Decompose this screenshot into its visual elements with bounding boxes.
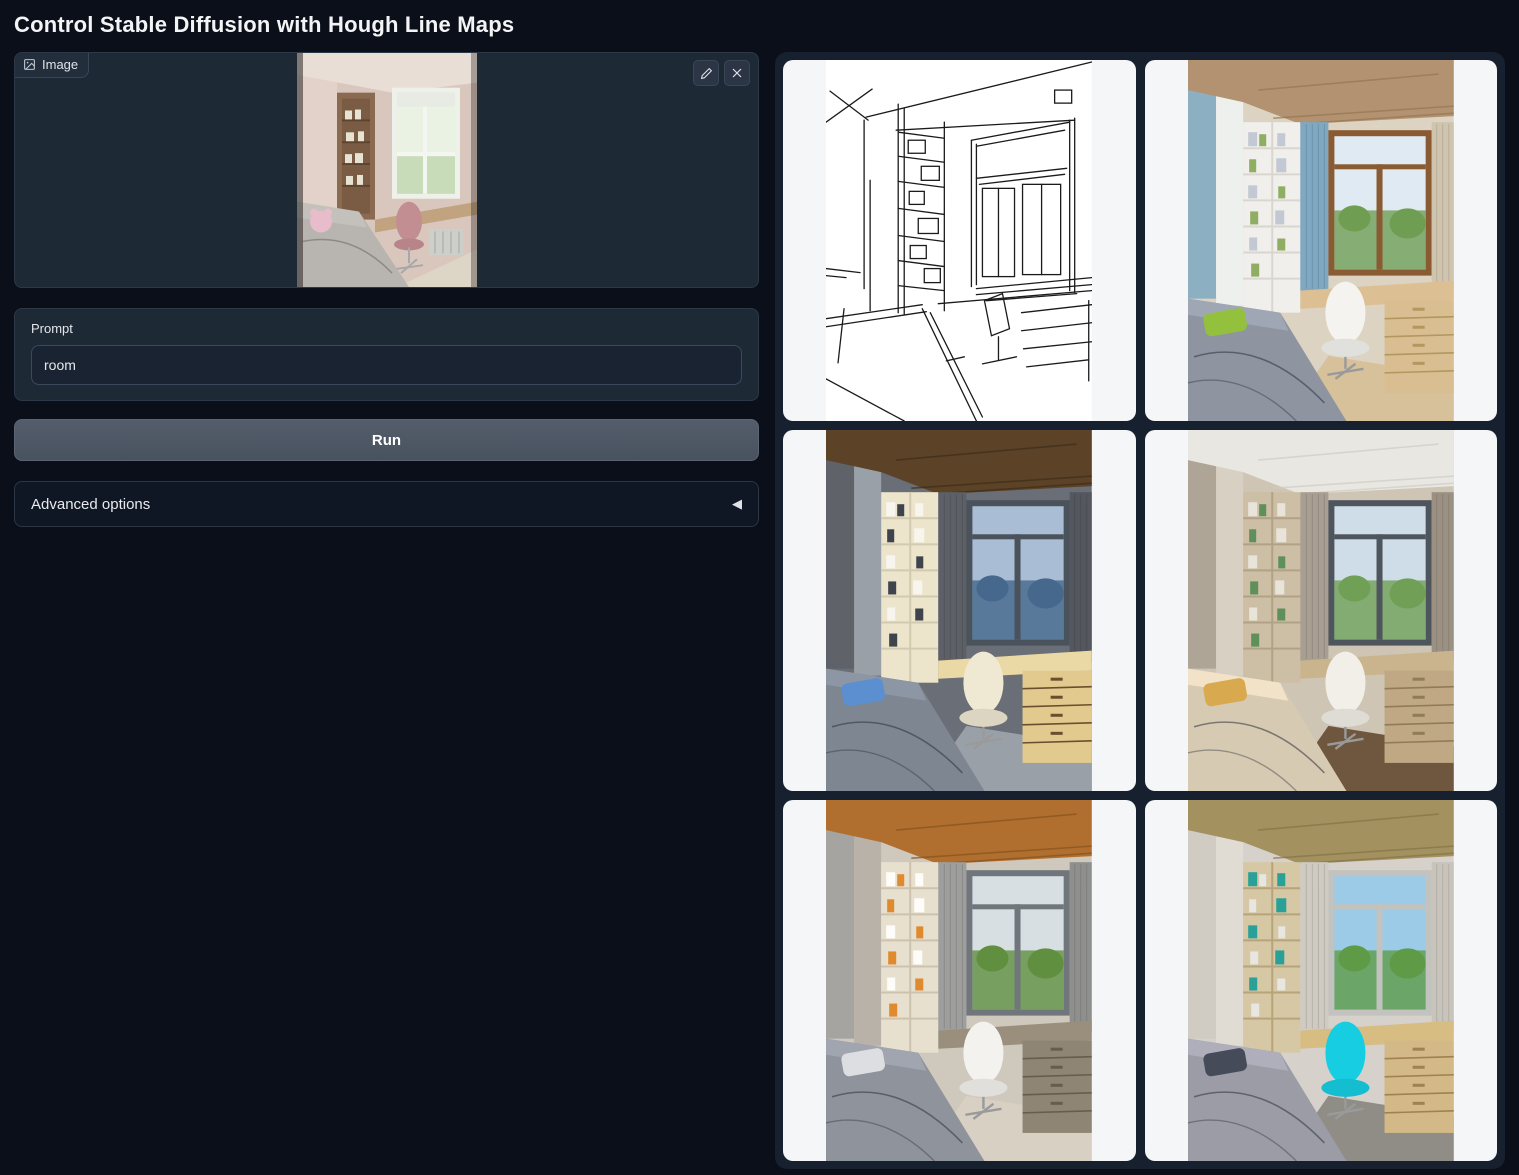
image-actions [693,60,750,86]
prompt-label: Prompt [31,321,742,336]
gallery-item-1[interactable] [783,60,1136,421]
image-label-text: Image [42,57,78,72]
gallery-item-6[interactable] [1145,800,1498,1161]
prompt-input[interactable] [31,345,742,385]
gallery-item-4[interactable] [1145,430,1498,791]
gallery-item-3[interactable] [783,430,1136,791]
generated-image-4 [826,800,1092,1161]
image-icon [23,58,36,71]
clear-button[interactable] [724,60,750,86]
advanced-options-accordion[interactable]: Advanced options ◀ [14,481,759,527]
uploaded-image-graphic [297,53,477,287]
edit-button[interactable] [693,60,719,86]
generated-image-2 [826,430,1092,791]
close-icon [731,67,743,79]
gallery-grid [783,60,1497,1161]
gallery-item-2[interactable] [1145,60,1498,421]
image-input-panel: Image [14,52,759,288]
uploaded-image[interactable] [297,53,477,287]
main-layout: Image [14,52,1505,1169]
hough-line-map-image [826,60,1092,421]
prompt-panel: Prompt [14,308,759,401]
run-button[interactable]: Run [14,419,759,461]
chevron-left-icon: ◀ [732,496,742,512]
generated-image-5 [1188,800,1454,1161]
advanced-options-label: Advanced options [31,496,150,513]
generated-image-1 [1188,60,1454,421]
gallery-item-5[interactable] [783,800,1136,1161]
image-label: Image [15,53,89,78]
page-title: Control Stable Diffusion with Hough Line… [14,12,1505,38]
gallery [775,52,1505,1169]
pencil-icon [700,67,713,80]
generated-image-3 [1188,430,1454,791]
left-column: Image [14,52,759,527]
